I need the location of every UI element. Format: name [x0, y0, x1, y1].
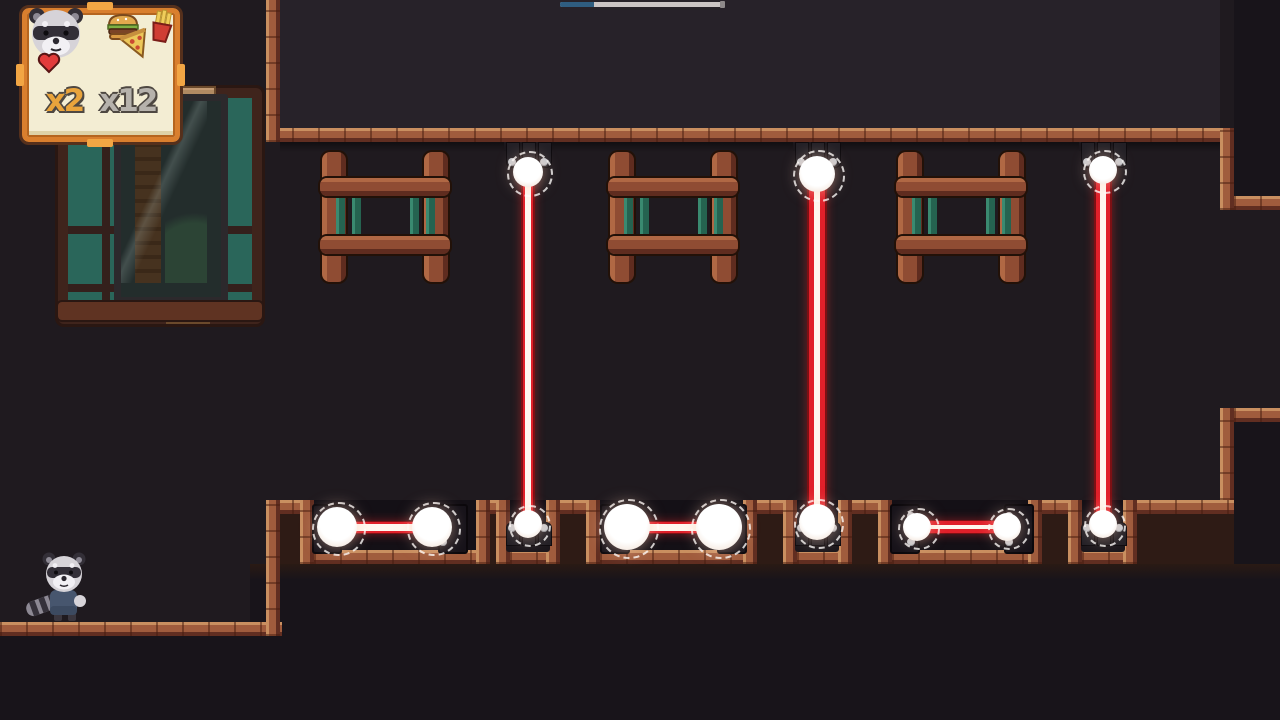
hud-counters: x2 x12	[22, 72, 180, 130]
right-step-wall-mid	[1220, 408, 1234, 500]
floor-pit-bottom	[797, 550, 838, 564]
pit-wall	[1068, 500, 1082, 564]
window-frame-bar	[896, 236, 1026, 254]
hud-frame-accent	[87, 2, 113, 10]
window-shutter-slat	[928, 196, 937, 236]
window-shutter-slat	[640, 196, 649, 236]
laser-beam-vertical	[521, 172, 535, 524]
laser-orb[interactable]	[317, 507, 357, 547]
window-shutter-slat	[410, 196, 419, 236]
food-count: x12	[99, 83, 156, 119]
window-shutter-slat	[986, 196, 995, 236]
laser-orb[interactable]	[993, 513, 1021, 541]
window-frame-bar	[608, 236, 738, 254]
hud-panel: x2 x12	[22, 8, 180, 142]
hud-frame-accent	[87, 139, 113, 147]
right-step-wall-top	[1220, 128, 1234, 210]
window-shutter-slat	[426, 196, 435, 236]
bg-below-floor	[250, 564, 1280, 720]
floor-pit-bottom	[510, 550, 546, 564]
window-frame-bar	[896, 178, 1026, 196]
bg-below-floor-left	[0, 636, 300, 720]
window-frame-bar	[608, 178, 738, 196]
level-progress-fill	[560, 2, 594, 7]
lower-floor	[0, 622, 282, 636]
window-shutter-slat	[336, 196, 345, 236]
right-step-ledge-mid	[1234, 408, 1280, 422]
laser-emitter-orb[interactable]	[799, 156, 835, 192]
game-scene[interactable]	[0, 0, 1280, 720]
pit-wall	[586, 500, 600, 564]
heart-icon	[36, 50, 62, 74]
window-frame-bar	[320, 236, 450, 254]
floor-plateau-top	[1123, 500, 1234, 514]
laser-receiver-orb[interactable]	[514, 510, 542, 538]
progress-endcap	[720, 1, 725, 8]
laser-emitter-orb[interactable]	[513, 157, 543, 187]
laser-beam-vertical	[807, 174, 827, 522]
bg-above-ceiling	[280, 0, 1220, 128]
pit-wall	[476, 500, 490, 564]
right-step-ledge-top	[1234, 196, 1280, 210]
bg-outside-right-mid	[1234, 422, 1280, 564]
laser-receiver-orb[interactable]	[1089, 510, 1117, 538]
window-shutter-slat	[912, 196, 921, 236]
laser-orb[interactable]	[412, 507, 452, 547]
laser-beam-vertical	[1094, 170, 1112, 524]
ceiling-beam	[266, 128, 1234, 142]
lives-count: x2	[46, 83, 84, 119]
laser-orb[interactable]	[604, 504, 650, 550]
left-wall-column	[266, 0, 280, 142]
laser-receiver-orb[interactable]	[799, 504, 835, 540]
game-stage: x2 x12	[0, 0, 1280, 720]
window-shutter-slat	[1002, 196, 1011, 236]
level-progress-bar	[560, 2, 722, 7]
bg-outside-right-top	[1234, 0, 1280, 196]
window-shutter-slat	[352, 196, 361, 236]
window-shutter-slat	[698, 196, 707, 236]
left-lower-wall	[266, 500, 280, 636]
laser-orb[interactable]	[696, 504, 742, 550]
window-shutter-slat	[714, 196, 723, 236]
window-shutter-slat	[624, 196, 633, 236]
laser-orb[interactable]	[903, 513, 931, 541]
laser-emitter-orb[interactable]	[1089, 156, 1117, 184]
room-sill	[58, 302, 262, 320]
window-frame-bar	[320, 178, 450, 196]
floor-pit-bottom	[1082, 550, 1123, 564]
raccoon-player[interactable]	[24, 548, 98, 624]
